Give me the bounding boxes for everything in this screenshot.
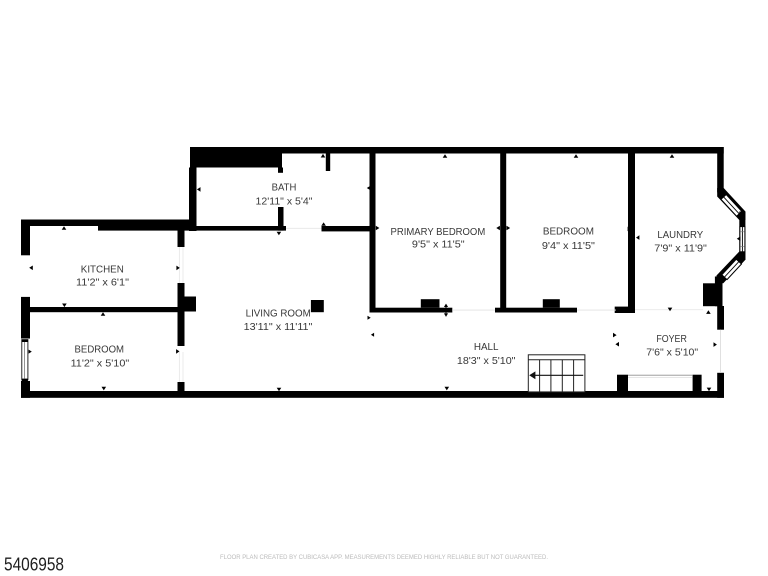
svg-text:9'5" x 11'5": 9'5" x 11'5"	[412, 239, 465, 250]
svg-text:PRIMARY BEDROOM: PRIMARY BEDROOM	[391, 227, 486, 238]
svg-text:HALL: HALL	[474, 342, 499, 353]
svg-text:BEDROOM: BEDROOM	[543, 227, 594, 238]
svg-text:5406958: 5406958	[4, 555, 64, 575]
svg-text:LAUNDRY: LAUNDRY	[657, 230, 703, 241]
svg-text:KITCHEN: KITCHEN	[81, 265, 124, 276]
svg-text:7'6" x 5'10": 7'6" x 5'10"	[646, 347, 698, 358]
svg-text:LIVING ROOM: LIVING ROOM	[246, 309, 311, 320]
svg-text:18'3" x 5'10": 18'3" x 5'10"	[457, 356, 516, 367]
svg-text:12'11" x 5'4": 12'11" x 5'4"	[256, 197, 313, 208]
svg-text:BATH: BATH	[272, 183, 297, 194]
svg-text:11'2" x 5'10": 11'2" x 5'10"	[71, 358, 130, 369]
svg-text:BEDROOM: BEDROOM	[75, 344, 125, 355]
svg-text:7'9" x 11'9": 7'9" x 11'9"	[654, 244, 707, 255]
svg-text:FOYER: FOYER	[656, 334, 687, 345]
svg-text:FLOOR PLAN CREATED BY CUBICASA: FLOOR PLAN CREATED BY CUBICASA APP. MEAS…	[220, 554, 548, 561]
svg-text:11'2" x 6'1": 11'2" x 6'1"	[76, 277, 129, 288]
svg-text:9'4" x 11'5": 9'4" x 11'5"	[542, 241, 595, 252]
svg-text:13'11" x 11'11": 13'11" x 11'11"	[244, 322, 313, 333]
